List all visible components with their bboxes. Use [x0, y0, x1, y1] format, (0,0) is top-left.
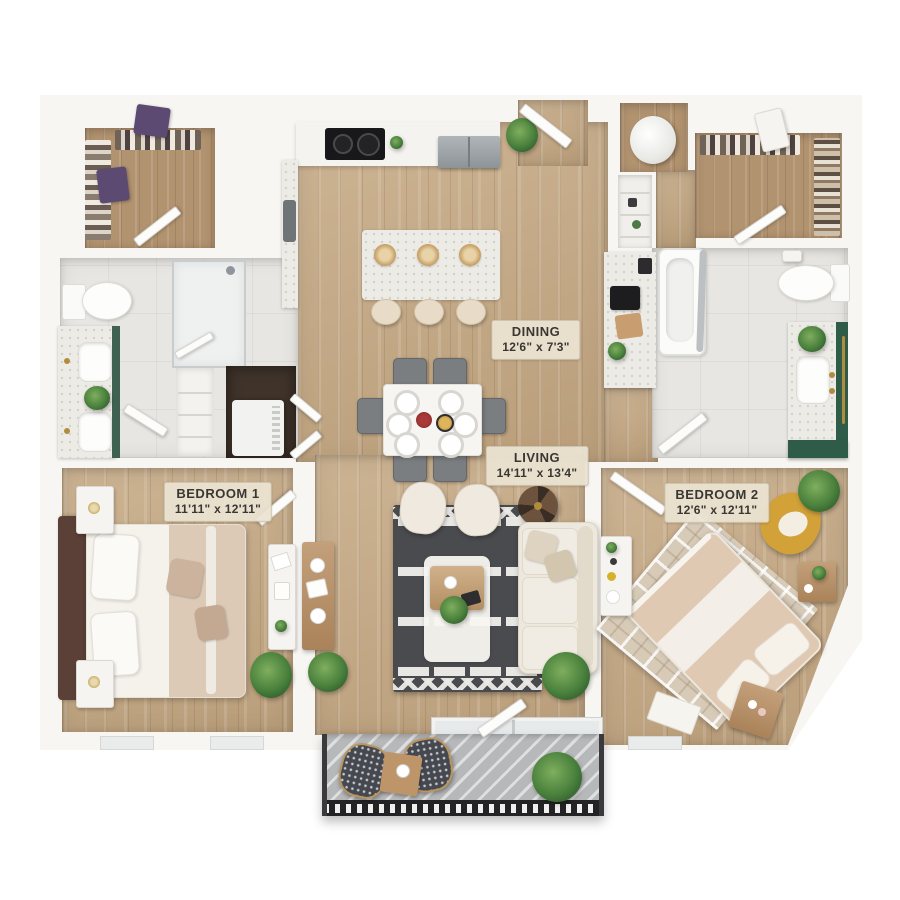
- bar-stool-icon: [371, 299, 401, 325]
- fridge-divider: [468, 137, 470, 167]
- linen-shelf: [178, 392, 212, 394]
- rug-zigzag-border: [393, 678, 542, 690]
- faucet-icon: [829, 388, 835, 394]
- toilet1-bowl-icon: [82, 282, 132, 320]
- living-plant-icon: [542, 652, 590, 700]
- toilet-paper-holder: [782, 250, 802, 262]
- vanity1-plant-icon: [84, 386, 110, 410]
- flower-decor-icon: [758, 708, 766, 716]
- dining-label: DINING 12'6" x 7'3": [491, 320, 580, 360]
- vanity2-green-front: [788, 440, 848, 458]
- sofa-cushion: [522, 577, 578, 624]
- closet2-shoe-rack: [814, 138, 840, 236]
- island-plate-icon: [374, 244, 396, 266]
- vanity2-plant-icon: [798, 326, 826, 352]
- living-plant-icon: [308, 652, 348, 692]
- living-label: LIVING 14'11" x 13'4": [486, 446, 589, 486]
- plate-icon: [438, 432, 464, 458]
- faucet-icon: [64, 428, 70, 434]
- bedroom1-label-dims: 11'11" x 12'11": [175, 502, 261, 517]
- niche-shelf: [620, 214, 650, 216]
- bowl-decor-icon: [88, 676, 100, 688]
- bedroom1-label: BEDROOM 1 11'11" x 12'11": [164, 482, 272, 522]
- burner-icon: [333, 134, 353, 154]
- bedroom2-plant-icon: [798, 470, 840, 512]
- accent-pillow-icon: [165, 557, 205, 598]
- console-decor-icon: [310, 558, 325, 573]
- niche-item-icon: [632, 220, 641, 229]
- balcony: [322, 734, 604, 816]
- vanity1-sink: [78, 342, 112, 382]
- console-decor-icon: [310, 608, 326, 624]
- bedroom2-label-dims: 12'6" x 12'11": [675, 503, 758, 518]
- floor-plan-canvas: DINING 12'6" x 7'3" LIVING 14'11" x 13'4…: [0, 0, 900, 900]
- vanity1-sink: [78, 412, 112, 452]
- sofa-back: [578, 526, 593, 668]
- rug-plant-icon: [440, 596, 468, 624]
- dining-label-name: DINING: [502, 324, 569, 340]
- bedroom2-label-name: BEDROOM 2: [675, 487, 758, 503]
- vanity2-sink: [796, 356, 830, 404]
- hallway-floor: [604, 388, 658, 462]
- niche-shelf: [620, 236, 650, 238]
- window: [100, 736, 154, 750]
- dining-label-dims: 12'6" x 7'3": [502, 340, 569, 355]
- cup-icon: [396, 764, 410, 778]
- burner-icon: [357, 133, 380, 156]
- bedroom2-label: BEDROOM 2 12'6" x 12'11": [664, 483, 769, 523]
- cutting-board-icon: [614, 312, 643, 339]
- water-heater-icon: [630, 116, 676, 164]
- bedroom1-plant-icon: [250, 652, 292, 698]
- living-label-name: LIVING: [497, 450, 578, 466]
- niche-item-icon: [628, 198, 637, 207]
- faucet-icon: [64, 358, 70, 364]
- serving-dish-icon: [416, 412, 432, 428]
- nightstand-plant-icon: [812, 566, 826, 580]
- balcony-side-post: [322, 734, 327, 816]
- island-plate-icon: [417, 244, 439, 266]
- closet2-hall-floor: [656, 170, 696, 248]
- bed2-sheet-band: [657, 561, 770, 672]
- vanity1-green-edge: [112, 326, 120, 458]
- dresser-plant-icon: [275, 620, 287, 632]
- toilet2-bowl-icon: [778, 265, 834, 301]
- bar-stool-icon: [456, 299, 486, 325]
- dresser-decor-icon: [606, 590, 620, 604]
- bowl-decor-icon: [88, 502, 100, 514]
- dresser-decor-icon: [274, 582, 290, 600]
- bathtub-basin: [666, 258, 694, 342]
- linen-shelf: [178, 414, 212, 416]
- fan-hub-icon: [534, 502, 542, 510]
- serving-pan-icon: [436, 414, 454, 432]
- storage-box-icon: [96, 166, 130, 203]
- plate-icon: [394, 432, 420, 458]
- dresser-leaf-icon: [606, 542, 617, 553]
- dresser-decor-icon: [610, 558, 617, 565]
- bedroom1-label-name: BEDROOM 1: [175, 486, 261, 502]
- kitchen-sink-icon: [283, 200, 296, 242]
- faucet-icon: [829, 372, 835, 378]
- window: [628, 736, 682, 750]
- flower-decor-icon: [748, 700, 757, 709]
- pillow-icon: [90, 532, 140, 601]
- balcony-side-post: [599, 734, 604, 816]
- patio-plant-icon: [532, 752, 582, 802]
- counter-herb-icon: [608, 342, 626, 360]
- counter-plant-icon: [390, 136, 403, 149]
- niche-shelf: [620, 192, 650, 194]
- towel-bar-icon: [842, 336, 845, 424]
- shower-head-icon: [226, 266, 235, 275]
- washer-vents: [272, 406, 280, 450]
- coffee-maker-icon: [610, 286, 640, 310]
- accent-pillow-icon: [194, 604, 229, 642]
- toaster-icon: [638, 258, 652, 274]
- table-decor-icon: [444, 576, 457, 589]
- linen-closet: [176, 368, 214, 456]
- window: [210, 736, 264, 750]
- living-label-dims: 14'11" x 13'4": [497, 466, 578, 481]
- dresser-decor-icon: [607, 572, 616, 581]
- railing-balusters: [324, 804, 602, 813]
- storage-box-icon: [133, 104, 171, 138]
- linen-shelf: [178, 436, 212, 438]
- island-plate-icon: [459, 244, 481, 266]
- bar-stool-icon: [414, 299, 444, 325]
- nightstand-decor-icon: [804, 584, 813, 593]
